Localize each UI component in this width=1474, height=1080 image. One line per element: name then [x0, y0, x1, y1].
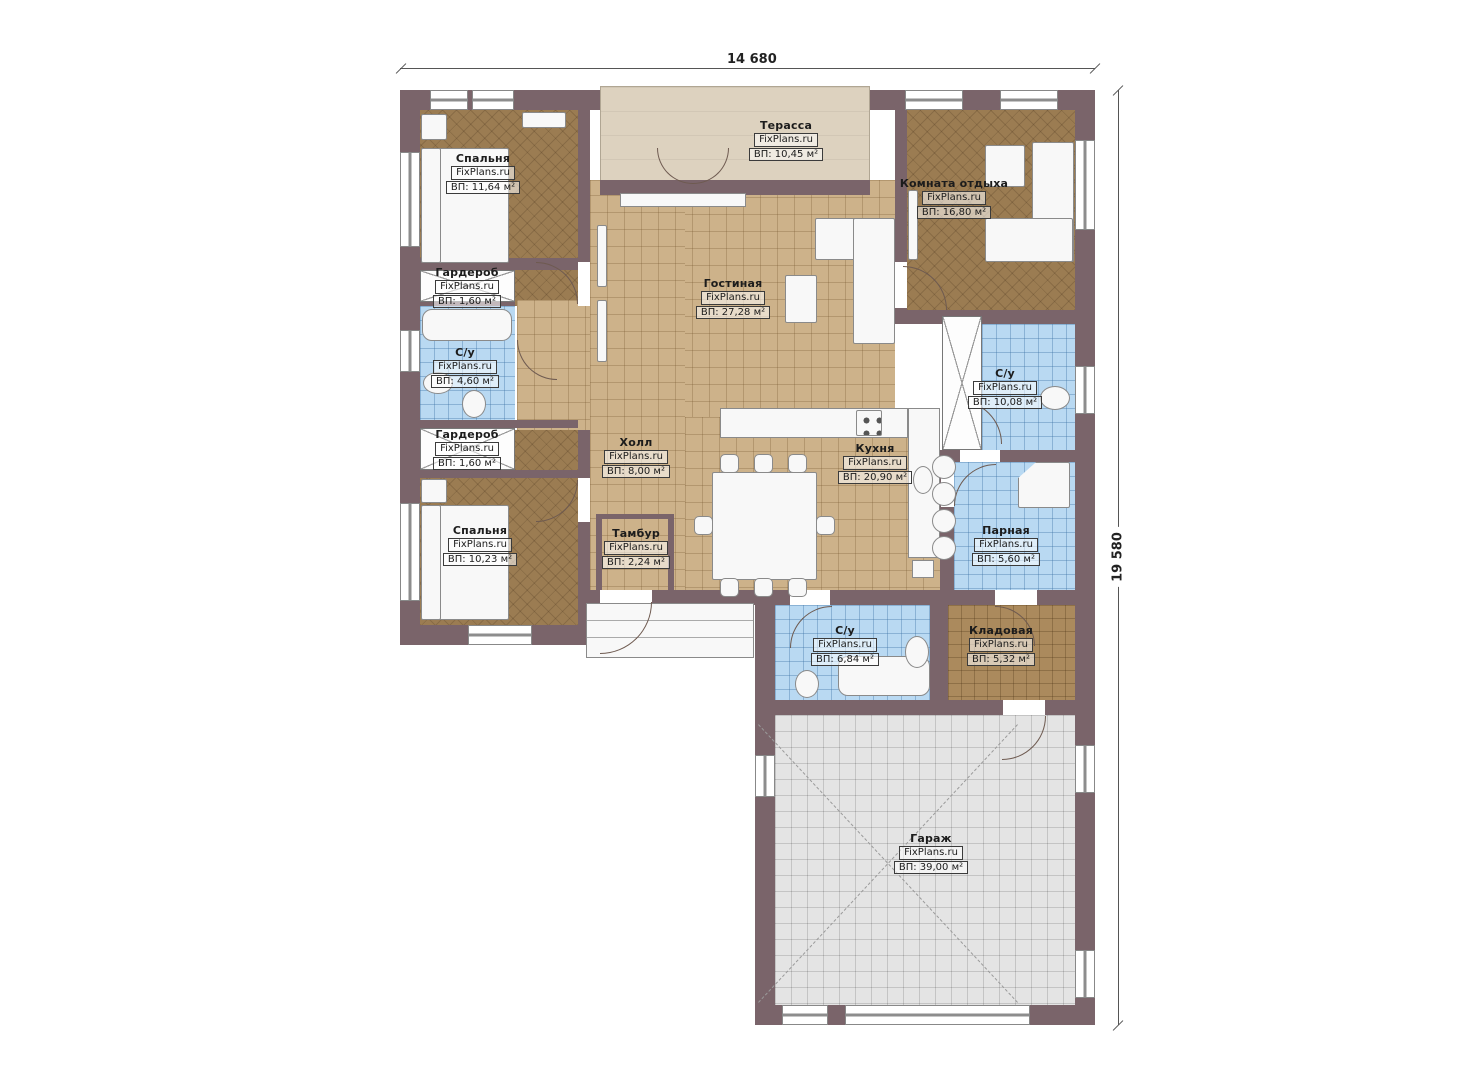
room-name: С/у — [410, 347, 520, 359]
door-opening — [578, 262, 590, 306]
room-area: ВП: 4,60 м² — [431, 375, 499, 388]
nightstand — [421, 479, 447, 503]
room-label-bathroom2: С/у FixPlans.ru ВП: 10,08 м² — [945, 368, 1065, 409]
sofa — [853, 218, 895, 344]
chair — [754, 454, 773, 473]
wall-wardrobe2-bottom — [420, 470, 578, 478]
room-brand: FixPlans.ru — [813, 638, 877, 651]
chair — [788, 454, 807, 473]
room-name: Холл — [580, 437, 692, 449]
room-label-bathroom3: С/у FixPlans.ru ВП: 6,84 м² — [785, 625, 905, 666]
room-label-kitchen: Кухня FixPlans.ru ВП: 20,90 м² — [815, 443, 935, 484]
garage-door — [845, 1005, 1030, 1025]
room-area: ВП: 10,23 м² — [443, 553, 517, 566]
room-brand: FixPlans.ru — [433, 360, 497, 373]
window — [1075, 950, 1095, 998]
door-opening — [960, 450, 1000, 462]
stove — [856, 410, 882, 436]
door-opening — [1003, 700, 1045, 715]
terrace-threshold — [620, 193, 746, 207]
room-brand: FixPlans.ru — [435, 442, 499, 455]
room-name: Кухня — [815, 443, 935, 455]
room-label-hall: Холл FixPlans.ru ВП: 8,00 м² — [580, 437, 692, 478]
room-name: С/у — [785, 625, 905, 637]
room-brand: FixPlans.ru — [435, 280, 499, 293]
room-name: Гардероб — [412, 429, 522, 441]
dimension-height-label: 19 580 — [1111, 527, 1126, 587]
room-area: ВП: 5,32 м² — [967, 653, 1035, 666]
window — [1075, 366, 1095, 414]
toilet — [795, 670, 819, 698]
room-brand: FixPlans.ru — [701, 291, 765, 304]
window — [1000, 90, 1058, 110]
room-label-garage: Гараж FixPlans.ru ВП: 39,00 м² — [871, 833, 991, 874]
room-label-bedroom2: Спальня FixPlans.ru ВП: 10,23 м² — [420, 525, 540, 566]
electric-panel — [912, 560, 934, 578]
room-area: ВП: 10,45 м² — [749, 148, 823, 161]
wall-tambur-top — [596, 514, 674, 519]
room-brand: FixPlans.ru — [973, 381, 1037, 394]
room-label-bedroom1: Спальня FixPlans.ru ВП: 11,64 м² — [423, 153, 543, 194]
room-brand: FixPlans.ru — [922, 191, 986, 204]
room-brand: FixPlans.ru — [843, 456, 907, 469]
tv-stand — [597, 300, 607, 362]
chair — [720, 578, 739, 597]
wall-restroom-bottom — [895, 310, 1095, 324]
wall-wing-left — [755, 598, 775, 1025]
washer — [932, 455, 956, 479]
toilet — [462, 390, 486, 418]
room-name: Спальня — [420, 525, 540, 537]
sofa — [985, 218, 1073, 262]
room-label-restroom: Комната отдыха FixPlans.ru ВП: 16,80 м² — [888, 178, 1020, 219]
room-brand: FixPlans.ru — [604, 450, 668, 463]
door-opening — [995, 590, 1037, 605]
chair — [694, 516, 713, 535]
window — [782, 1005, 828, 1025]
window — [1075, 140, 1095, 230]
room-area: ВП: 6,84 м² — [811, 653, 879, 666]
wall-right — [1075, 90, 1095, 1025]
room-name: Тамбур — [581, 528, 691, 540]
dimension-line-top — [400, 68, 1095, 69]
room-area: ВП: 5,60 м² — [972, 553, 1040, 566]
room-name: Гардероб — [412, 267, 522, 279]
window — [430, 90, 468, 110]
room-brand: FixPlans.ru — [974, 538, 1038, 551]
window — [400, 152, 420, 247]
room-area: ВП: 8,00 м² — [602, 465, 670, 478]
room-label-wardrobe1: Гардероб FixPlans.ru ВП: 1,60 м² — [412, 267, 522, 308]
room-area: ВП: 16,80 м² — [917, 206, 991, 219]
room-label-steamroom: Парная FixPlans.ru ВП: 5,60 м² — [946, 525, 1066, 566]
room-name: Гараж — [871, 833, 991, 845]
room-label-terrace: Терасса FixPlans.ru ВП: 10,45 м² — [726, 120, 846, 161]
room-brand: FixPlans.ru — [451, 166, 515, 179]
room-area: ВП: 1,60 м² — [433, 457, 501, 470]
room-name: Спальня — [423, 153, 543, 165]
tv-stand — [597, 225, 607, 287]
window — [1075, 745, 1095, 793]
dresser — [522, 112, 566, 128]
door-opening — [578, 478, 590, 522]
chair — [720, 454, 739, 473]
chair — [816, 516, 835, 535]
sink — [905, 636, 929, 668]
window — [472, 90, 514, 110]
dimension-width-label: 14 680 — [722, 52, 782, 67]
room-label-storage: Кладовая FixPlans.ru ВП: 5,32 м² — [941, 625, 1061, 666]
room-label-tambur: Тамбур FixPlans.ru ВП: 2,24 м² — [581, 528, 691, 569]
room-name: Кладовая — [941, 625, 1061, 637]
wall-top-right — [870, 90, 1095, 110]
room-area: ВП: 2,24 м² — [602, 556, 670, 569]
chair — [788, 578, 807, 597]
room-brand: FixPlans.ru — [754, 133, 818, 146]
room-name: С/у — [945, 368, 1065, 380]
room-name: Гостиная — [673, 278, 793, 290]
room-brand: FixPlans.ru — [448, 538, 512, 551]
room-label-bathroom1: С/у FixPlans.ru ВП: 4,60 м² — [410, 347, 520, 388]
room-area: ВП: 1,60 м² — [433, 295, 501, 308]
room-name: Парная — [946, 525, 1066, 537]
room-area: ВП: 10,08 м² — [968, 396, 1042, 409]
room-area: ВП: 11,64 м² — [446, 181, 520, 194]
room-area: ВП: 39,00 м² — [894, 861, 968, 874]
room-name: Терасса — [726, 120, 846, 132]
floor-plan: 14 680 19 580 — [0, 0, 1474, 1080]
wall-bath1-bottom — [420, 420, 578, 428]
window — [400, 503, 420, 601]
room-label-wardrobe2: Гардероб FixPlans.ru ВП: 1,60 м² — [412, 429, 522, 470]
window — [755, 755, 775, 797]
bathtub — [422, 309, 512, 341]
room-name: Комната отдыха — [888, 178, 1020, 190]
room-brand: FixPlans.ru — [604, 541, 668, 554]
room-brand: FixPlans.ru — [969, 638, 1033, 651]
nightstand — [421, 114, 447, 140]
room-area: ВП: 27,28 м² — [696, 306, 770, 319]
dining-table — [712, 472, 817, 580]
room-label-livingroom: Гостиная FixPlans.ru ВП: 27,28 м² — [673, 278, 793, 319]
wardrobe2-side-floor — [515, 430, 578, 470]
room-area: ВП: 20,90 м² — [838, 471, 912, 484]
window — [468, 625, 532, 645]
room-brand: FixPlans.ru — [899, 846, 963, 859]
washer — [932, 482, 956, 506]
chair — [754, 578, 773, 597]
window — [905, 90, 963, 110]
